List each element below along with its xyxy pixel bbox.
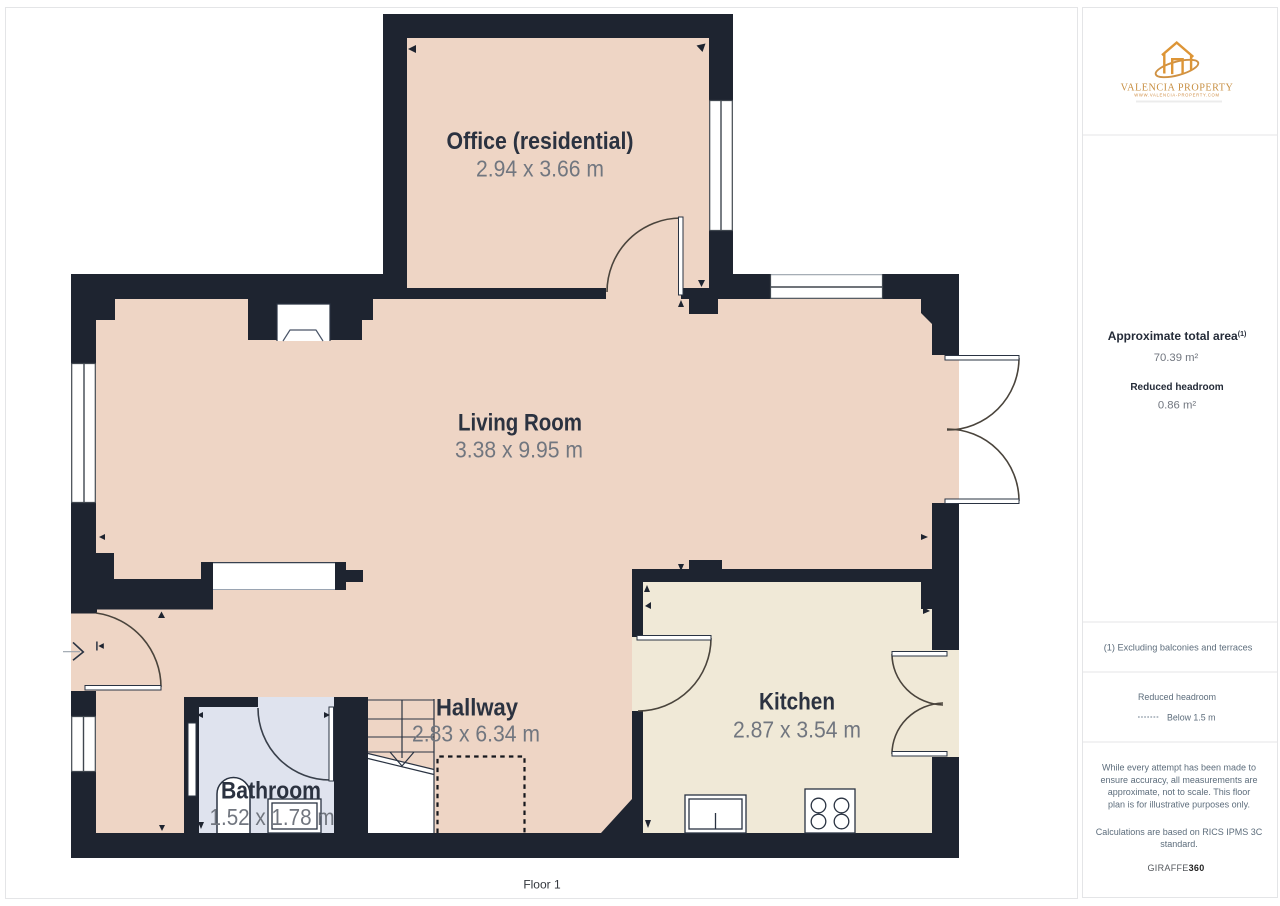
svg-text:Reduced headroom: Reduced headroom [1130, 382, 1223, 393]
svg-text:2.83 x 6.34 m: 2.83 x 6.34 m [412, 721, 540, 747]
svg-text:Reduced headroom: Reduced headroom [1138, 692, 1216, 702]
svg-text:Kitchen: Kitchen [759, 689, 835, 716]
svg-text:Office (residential): Office (residential) [447, 128, 634, 155]
svg-text:GIRAFFE360: GIRAFFE360 [1147, 863, 1204, 873]
svg-text:0.86 m²: 0.86 m² [1158, 400, 1197, 412]
svg-text:While every attempt has been m: While every attempt has been made to [1102, 763, 1256, 773]
svg-text:Bathroom: Bathroom [221, 778, 321, 805]
svg-text:approximate, not to scale. Thi: approximate, not to scale. This floor [1108, 787, 1250, 797]
svg-text:Below 1.5 m: Below 1.5 m [1167, 713, 1215, 723]
svg-text:(1) Excluding balconies and te: (1) Excluding balconies and terraces [1104, 643, 1253, 653]
svg-text:Calculations are based on RICS: Calculations are based on RICS IPMS 3C [1096, 827, 1263, 837]
svg-text:70.39 m²: 70.39 m² [1154, 352, 1199, 364]
svg-text:WWW.VALENCIA-PROPERTY.COM: WWW.VALENCIA-PROPERTY.COM [1134, 93, 1219, 98]
svg-text:2.94 x 3.66 m: 2.94 x 3.66 m [476, 156, 604, 182]
svg-text:1.52 x 1.78 m: 1.52 x 1.78 m [210, 804, 335, 830]
svg-text:Living Room: Living Room [458, 410, 582, 437]
svg-text:Approximate total area(1): Approximate total area(1) [1108, 329, 1247, 343]
svg-text:standard.: standard. [1160, 839, 1198, 849]
svg-text:3.38 x 9.95 m: 3.38 x 9.95 m [455, 437, 583, 463]
svg-text:ensure accuracy, all measureme: ensure accuracy, all measurements are [1101, 775, 1258, 785]
svg-text:2.87 x 3.54 m: 2.87 x 3.54 m [733, 717, 861, 743]
svg-text:plan is for illustrative purpo: plan is for illustrative purposes only. [1108, 799, 1250, 809]
svg-text:Hallway: Hallway [436, 695, 519, 722]
svg-text:Floor 1: Floor 1 [523, 878, 561, 892]
